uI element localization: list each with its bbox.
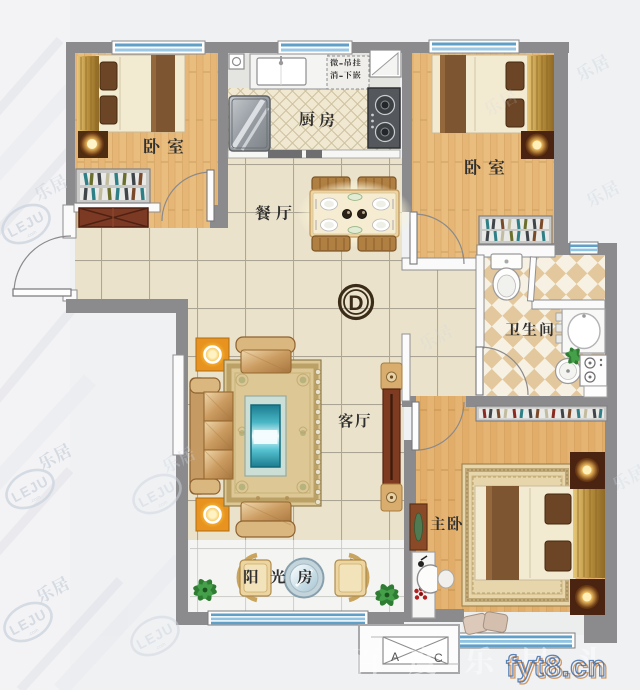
svg-text:fyt8.cn: fyt8.cn — [506, 650, 606, 683]
svg-text:A: A — [391, 650, 399, 664]
svg-text:C: C — [434, 651, 443, 665]
svg-text:D: D — [348, 292, 363, 315]
